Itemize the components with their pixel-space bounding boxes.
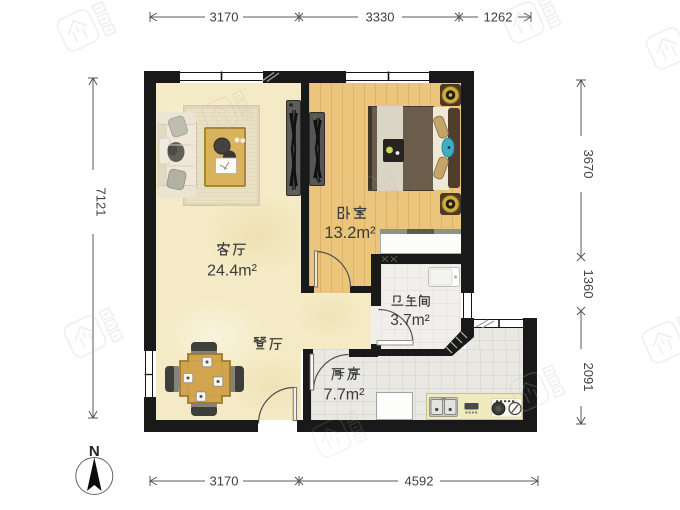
- svg-text:7121: 7121: [94, 188, 109, 217]
- svg-text:3170: 3170: [210, 474, 239, 489]
- svg-text:7.7m²: 7.7m²: [324, 387, 366, 404]
- svg-text:3.7m²: 3.7m²: [390, 312, 430, 329]
- svg-text:3330: 3330: [366, 10, 395, 25]
- svg-text:2091: 2091: [581, 363, 596, 392]
- svg-text:3670: 3670: [581, 150, 596, 179]
- svg-text:1360: 1360: [581, 270, 596, 299]
- svg-text:4592: 4592: [405, 474, 434, 489]
- svg-text:3170: 3170: [210, 10, 239, 25]
- svg-text:24.4m²: 24.4m²: [207, 263, 257, 280]
- svg-text:13.2m²: 13.2m²: [324, 224, 376, 242]
- svg-text:1262: 1262: [484, 10, 513, 25]
